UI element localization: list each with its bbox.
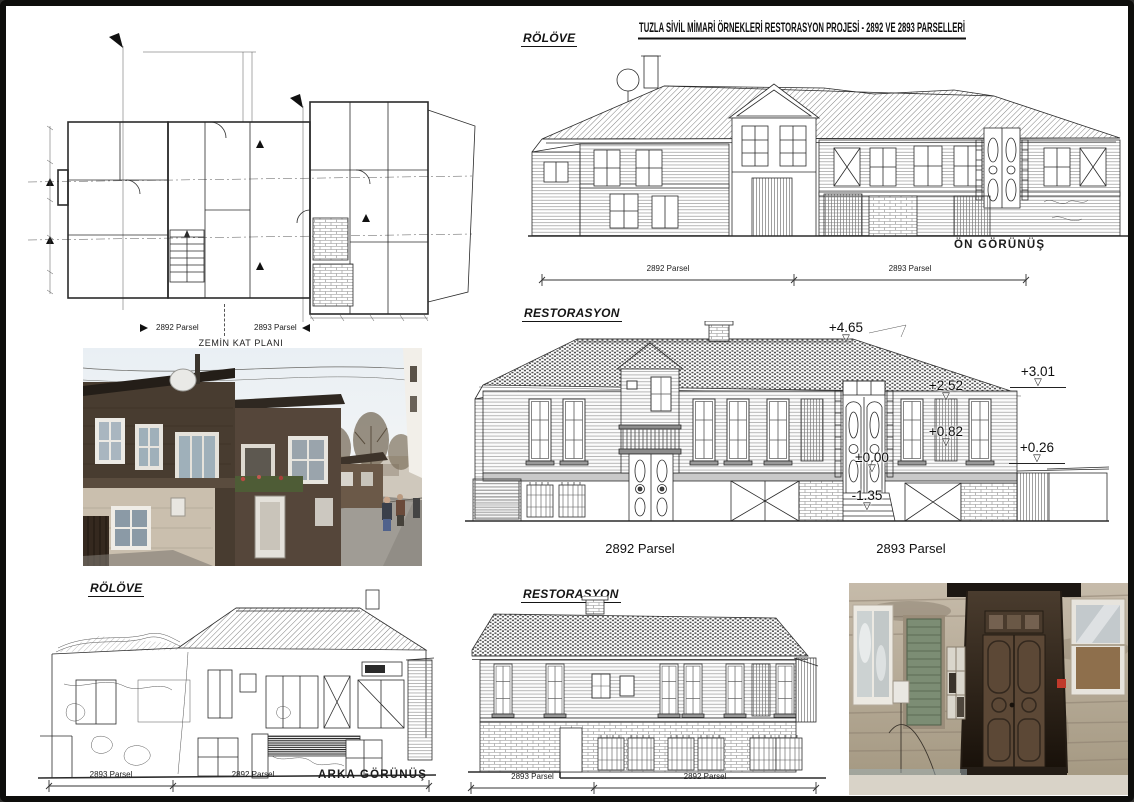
street-photo [83, 348, 422, 566]
meter-box [893, 681, 909, 703]
door-photo [849, 583, 1134, 795]
level-triangle-icon: ▽ [1010, 379, 1066, 387]
plan-partitions [68, 102, 428, 314]
dim-label: 2893 Parsel [471, 772, 594, 781]
level-triangle-icon: ▽ [918, 439, 974, 447]
level-triangle-icon: ▽ [844, 465, 900, 473]
dim-label: 2892 Parsel [594, 772, 816, 781]
parsel-marker-icon [302, 324, 310, 332]
level-marker: +0.26 ▽ [1009, 440, 1065, 464]
restoration-parsel-left: 2892 Parsel [595, 541, 685, 556]
plan-outer-walls [58, 102, 475, 314]
rear-restoration-drawing [464, 596, 854, 784]
floor-plan-drawing [20, 30, 480, 326]
garden-wall [1017, 467, 1109, 521]
front-survey-view-label: ÖN GÖRÜNÜŞ [954, 239, 1045, 251]
front-survey-drawing [524, 44, 1132, 250]
level-triangle-icon: ▽ [918, 393, 974, 401]
sheet-title: TUZLA SİVİL MİMARİ ÖRNEKLERİ RESTORASYON… [639, 20, 965, 35]
level-marker: +2.52 ▽ [918, 378, 974, 401]
plan-caption: ZEMİN KAT PLANI [178, 338, 304, 348]
rear-survey-drawing [28, 588, 448, 784]
dim-label: 2893 Parsel [49, 770, 173, 779]
main-entry-door [629, 454, 673, 521]
chimney [644, 56, 658, 88]
wooden-double-door [983, 635, 1045, 767]
level-marker: +0.82 ▽ [918, 424, 974, 447]
parsel-marker-icon [140, 324, 148, 332]
green-shutter [903, 615, 945, 729]
dim-label: 2892 Parsel [173, 770, 333, 779]
restoration-parsel-right: 2893 Parsel [866, 541, 956, 556]
sheet-title-block: TUZLA SİVİL MİMARİ ÖRNEKLERİ RESTORASYON… [636, 19, 968, 45]
front-restoration-heading: RESTORASYON [522, 306, 622, 322]
basement-door [560, 728, 582, 772]
right-window [1071, 599, 1125, 695]
satellite-dish-icon [617, 69, 639, 91]
parsel-divider [224, 304, 225, 336]
dim-label: 2892 Parsel [542, 264, 794, 273]
rear-survey-view-label: ARKA GÖRÜNÜŞ [318, 769, 427, 781]
house-number-plate [1057, 679, 1066, 688]
dim-label: 2893 Parsel [794, 264, 1026, 273]
level-triangle-icon: ▽ [1009, 455, 1065, 463]
level-triangle-icon: ▽ [818, 335, 874, 343]
level-marker: -1.35 ▽ [839, 488, 895, 511]
level-marker: +3.01 ▽ [1010, 364, 1066, 388]
level-triangle-icon: ▽ [839, 503, 895, 511]
front-restoration-drawing [461, 321, 1111, 539]
plan-parsel-left-label: 2892 Parsel [156, 323, 199, 332]
chimney [366, 590, 379, 609]
basement-windows [598, 735, 802, 770]
front-survey-dimension: 2892 Parsel 2893 Parsel [542, 264, 1026, 286]
level-marker: ±0.00 ▽ [844, 450, 900, 473]
gable-bay [617, 343, 683, 521]
rear-restoration-dimension: 2893 Parsel 2892 Parsel [471, 772, 816, 794]
level-marker: +4.65 ▽ [818, 320, 874, 343]
drawing-sheet: TUZLA SİVİL MİMARİ ÖRNEKLERİ RESTORASYON… [0, 0, 1134, 802]
plan-parsel-right-label: 2893 Parsel [254, 323, 297, 332]
left-window [853, 605, 893, 705]
